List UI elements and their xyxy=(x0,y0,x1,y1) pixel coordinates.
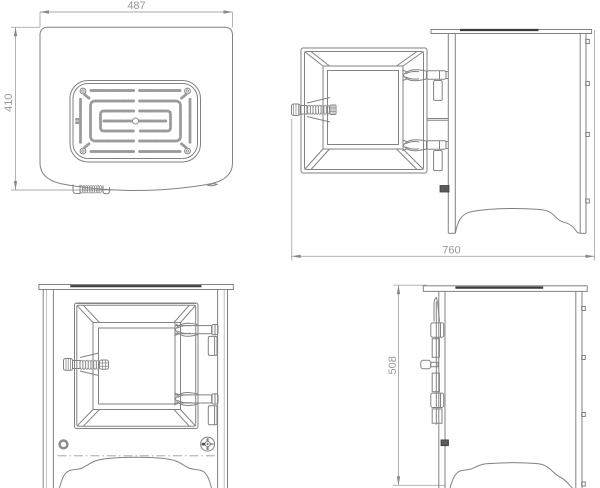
svg-text:487: 487 xyxy=(127,0,145,12)
svg-text:760: 760 xyxy=(442,245,460,257)
svg-text:508: 508 xyxy=(387,356,399,374)
svg-text:410: 410 xyxy=(3,94,15,112)
